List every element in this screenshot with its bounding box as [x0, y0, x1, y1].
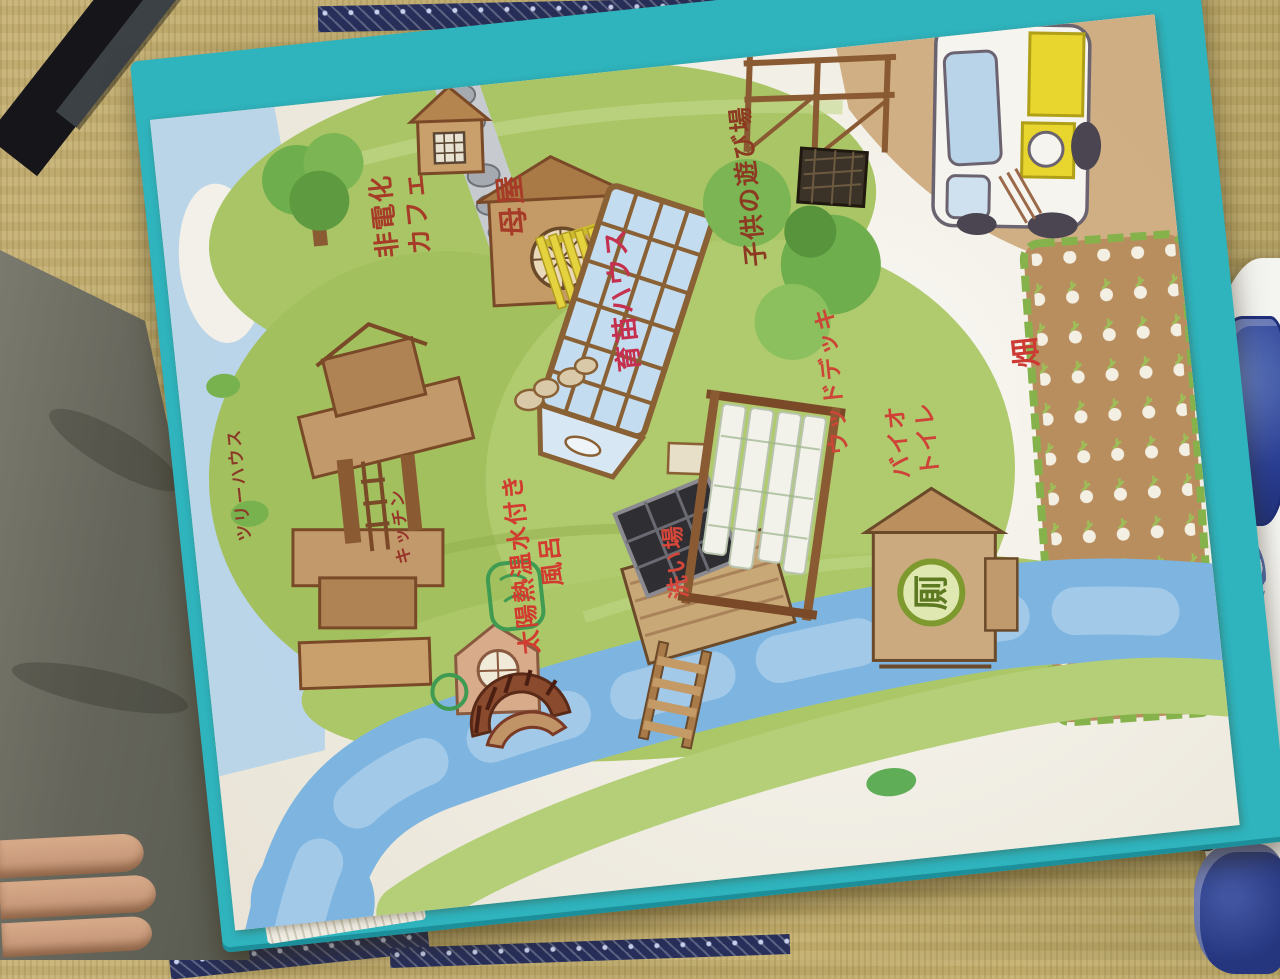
toilet-sign-kanji: 厠 — [911, 574, 952, 610]
label-main-house: 母屋 — [491, 171, 535, 239]
finger — [0, 833, 145, 879]
label-bio-toilet: バイオ トイレ — [881, 400, 946, 481]
label-hidenka-cafe: 非電化 カフェ — [365, 169, 438, 259]
sketchbook: 厠 — [150, 14, 1240, 930]
plate-rim-pattern — [1194, 844, 1280, 974]
finger — [1, 916, 153, 958]
tatami-border-strip-bottom-center — [390, 934, 790, 968]
hand — [0, 832, 173, 965]
label-field: 畑 — [1007, 334, 1048, 370]
finger — [0, 874, 157, 919]
photo-scene: { "scene": { "description_tagline": "", … — [0, 0, 1280, 960]
map-drawing: 厠 — [150, 14, 1240, 930]
sandbox-crate — [798, 148, 868, 206]
sketchbook-page: 厠 — [150, 14, 1240, 930]
van-drawing — [932, 23, 1103, 239]
